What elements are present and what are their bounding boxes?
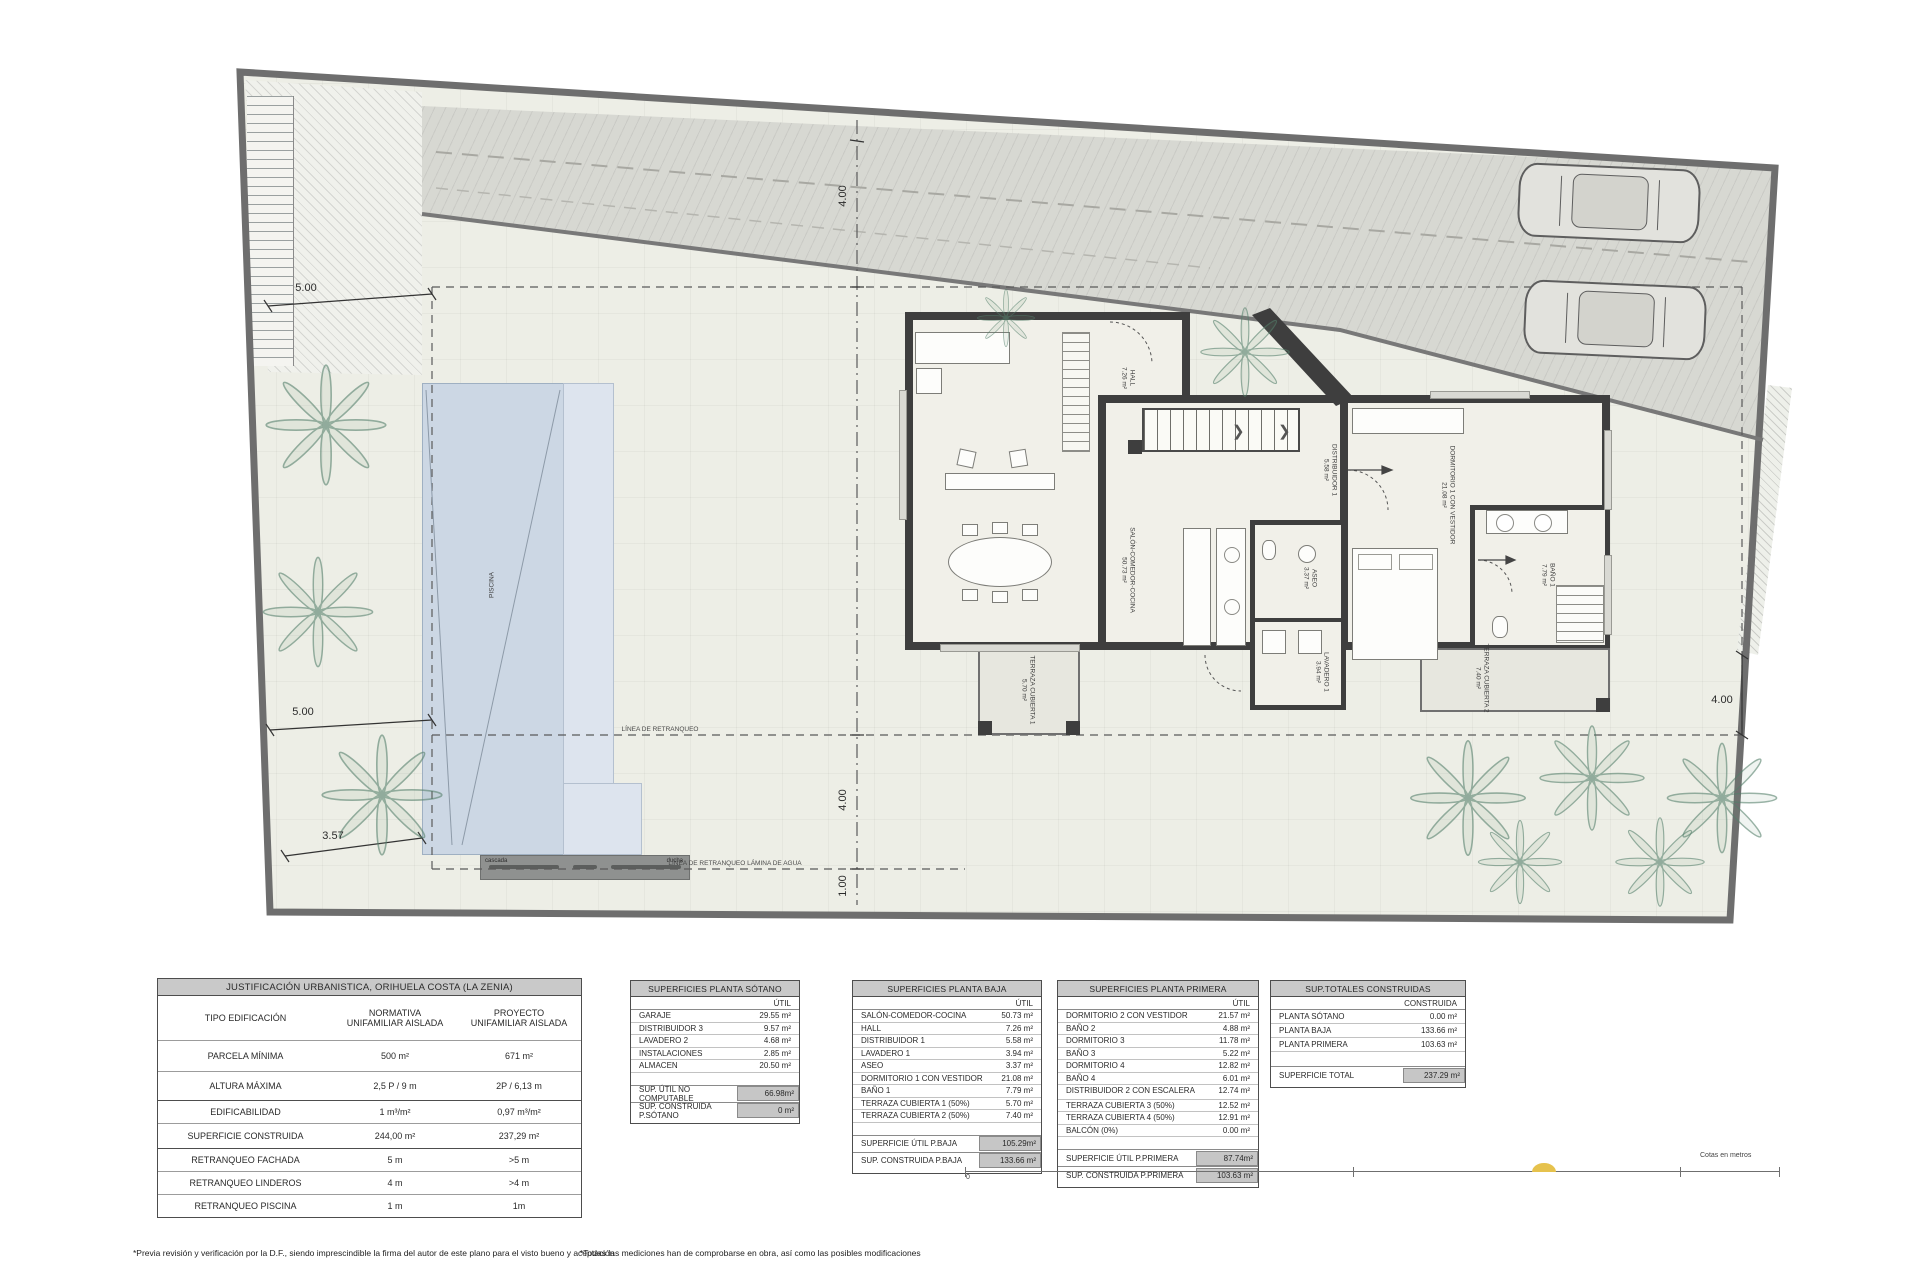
table-row: PLANTA SÓTANO0.00 m² [1271,1010,1465,1024]
room-label-terraza-2: TERRAZA CUBIERTA 27.40 m² [1475,643,1490,712]
parked-car [1516,162,1701,244]
table-totales-construidas: SUP.TOTALES CONSTRUIDAS CONSTRUIDA PLANT… [1270,980,1466,1088]
table-row: SUPERFICIE CONSTRUIDA244,00 m²237,29 m² [158,1124,581,1149]
table-summary-row: SUPERFICIE ÚTIL P.PRIMERA87.74m² [1058,1149,1258,1166]
dimension-bottom-inner: 1.00 [837,875,849,896]
car-cabin [1571,173,1649,230]
column-header: CONSTRUIDA [1271,997,1465,1010]
table-row: DISTRIBUIDOR 15.58 m² [853,1035,1041,1048]
table-superficies-sotano: SUPERFICIES PLANTA SÓTANO ÚTIL GARAJE29.… [630,980,800,1124]
table-title: SUPERFICIES PLANTA BAJA [853,981,1041,997]
car-rear-glass [1663,297,1666,347]
table-summary-row: SUP. CONSTRUIDA P.SÓTANO0 m² [631,1102,799,1119]
scale-bar [965,1171,1780,1172]
table-row: DISTRIBUIDOR 39.57 m² [631,1023,799,1036]
table-row: BAÑO 17.79 m² [853,1085,1041,1098]
table-row: BALCÓN (0%)0.00 m² [1058,1125,1258,1138]
scale-tick [1680,1167,1681,1177]
table-title: SUPERFICIES PLANTA PRIMERA [1058,981,1258,997]
table-row: INSTALACIONES2.85 m² [631,1048,799,1061]
column-header: ÚTIL [1058,997,1258,1010]
table-row: LAVADERO 24.68 m² [631,1035,799,1048]
table-row: DISTRIBUIDOR 2 CON ESCALERA12.74 m² [1058,1085,1258,1100]
dimension-left-lower: 5.00 [292,706,313,718]
table-row: BAÑO 35.22 m² [1058,1048,1258,1061]
dimension-top: 4.00 [837,185,849,206]
scale-tick [1779,1167,1780,1177]
room-label-aseo: ASEO3.37 m² [1303,567,1318,589]
scale-tick [1353,1167,1354,1177]
scale-zero-label: 0 [966,1174,970,1181]
table-summary-row: SUPERFICIE TOTAL237.29 m² [1271,1066,1465,1083]
footnote-revision: *Previa revisión y verificación por la D… [133,1248,614,1258]
table-row: ALTURA MÁXIMA2,5 P / 9 m2P / 6,13 m [158,1072,581,1101]
table-row: EDIFICABILIDAD1 m³/m²0,97 m³/m² [158,1101,581,1124]
table-row: BAÑO 24.88 m² [1058,1023,1258,1036]
dimension-bottom-center: 4.00 [837,789,849,810]
car-windshield [1559,176,1562,226]
table-title: SUPERFICIES PLANTA SÓTANO [631,981,799,997]
table-summary-row: SUP. CONSTRUIDA P.PRIMERA103.63 m² [1058,1166,1258,1183]
table-row: ASEO3.37 m² [853,1060,1041,1073]
table-row: SALÓN-COMEDOR-COCINA50.73 m² [853,1010,1041,1023]
table-justificacion-urbanistica: JUSTIFICACIÓN URBANISTICA, ORIHUELA COST… [157,978,582,1218]
room-label-distribuidor-1: DISTRIBUIDOR 15.58 m² [1323,444,1338,496]
car-windshield [1565,293,1568,343]
footnote-mediciones: *Todas las mediciones han de comprobarse… [580,1248,921,1258]
room-label-salon: SALÓN-COMEDOR-COCINA50.73 m² [1121,527,1136,613]
site-plan-sheet: cascada ducha [0,0,1920,1280]
table-row: HALL7.26 m² [853,1023,1041,1036]
column-header: ÚTIL [631,997,799,1010]
car-cabin [1577,290,1655,347]
parked-car [1522,279,1707,361]
table-summary-row: SUPERFICIE ÚTIL P.BAJA105.29m² [853,1135,1041,1152]
table-superficies-primera: SUPERFICIES PLANTA PRIMERA ÚTIL DORMITOR… [1057,980,1259,1188]
table-title: JUSTIFICACIÓN URBANISTICA, ORIHUELA COST… [158,979,581,996]
column-header: ÚTIL [853,997,1041,1010]
table-row: TIPO EDIFICACIÓN NORMATIVAUNIFAMILIAR AI… [158,996,581,1041]
table-row: TERRAZA CUBIERTA 2 (50%)7.40 m² [853,1110,1041,1123]
table-row: PARCELA MÍNIMA500 m²671 m² [158,1041,581,1072]
room-label-hall: HALL7.26 m² [1121,367,1136,389]
setback-line-label: LÍNEA DE RETRANQUEO [622,726,699,733]
table-row: DORMITORIO 1 CON VESTIDOR21.08 m² [853,1073,1041,1086]
table-row: TERRAZA CUBIERTA 1 (50%)5.70 m² [853,1098,1041,1111]
table-superficies-baja: SUPERFICIES PLANTA BAJA ÚTIL SALÓN-COMED… [852,980,1042,1174]
table-row: LAVADERO 13.94 m² [853,1048,1041,1061]
dimension-right: 4.00 [1711,694,1732,706]
table-summary-row: SUP. ÚTIL NO COMPUTABLE66.98m² [631,1085,799,1102]
table-row: DORMITORIO 311.78 m² [1058,1035,1258,1048]
table-row: RETRANQUEO PISCINA1 m1m [158,1195,581,1217]
room-label-bano-1: BAÑO 17.79 m² [1541,563,1556,587]
car-rear-glass [1657,180,1660,230]
table-row: BAÑO 46.01 m² [1058,1073,1258,1086]
table-row: ALMACEN20.50 m² [631,1060,799,1073]
table-summary-row: SUP. CONSTRUIDA P.BAJA133.66 m² [853,1152,1041,1169]
table-row: TERRAZA CUBIERTA 3 (50%)12.52 m² [1058,1100,1258,1113]
dimension-left-upper: 5.00 [295,282,316,294]
room-label-terraza-1: TERRAZA CUBIERTA 15.70 m² [1021,655,1036,724]
table-row: TERRAZA CUBIERTA 4 (50%)12.91 m² [1058,1112,1258,1125]
table-row: GARAJE29.55 m² [631,1010,799,1023]
room-label-lavadero-1: LAVADERO 13.94 m² [1315,652,1330,692]
table-row: DORMITORIO 2 CON VESTIDOR21.57 m² [1058,1010,1258,1023]
room-label-dormitorio-1: DORMITORIO 1 CON VESTIDOR21.08 m² [1441,446,1456,545]
setback-water-line-label: LÍNEA DE RETRANQUEO LÁMINA DE AGUA [668,860,801,867]
table-row: PLANTA PRIMERA103.63 m² [1271,1038,1465,1052]
table-title: SUP.TOTALES CONSTRUIDAS [1271,981,1465,997]
table-row: RETRANQUEO FACHADA5 m>5 m [158,1149,581,1172]
table-row: DORMITORIO 412.82 m² [1058,1060,1258,1073]
table-row: RETRANQUEO LINDEROS4 m>4 m [158,1172,581,1195]
table-row: PLANTA BAJA133.66 m² [1271,1024,1465,1038]
scale-caption: Cotas en metros [1700,1152,1751,1159]
room-label-piscina: PISCINA [488,572,496,598]
dimension-left-bottom: 3.57 [322,830,343,842]
